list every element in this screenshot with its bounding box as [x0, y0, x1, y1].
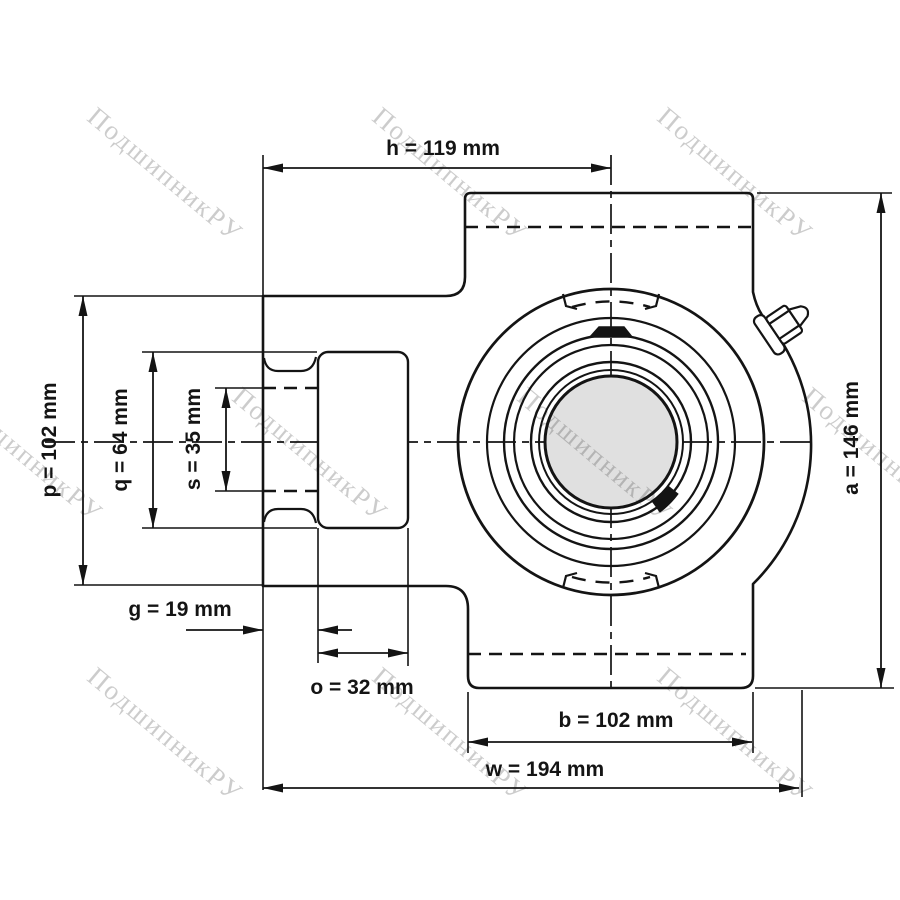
dimension-h: h = 119 mm [263, 137, 611, 168]
dimension-o-label: o = 32 mm [310, 676, 413, 699]
dimension-a-label: a = 146 mm [840, 381, 863, 495]
dimension-a: a = 146 mm [840, 193, 881, 688]
grease-hole-marker [590, 327, 632, 337]
shaft-bore [545, 376, 677, 508]
dimension-q-label: q = 64 mm [109, 388, 132, 491]
arm-notches [264, 357, 316, 523]
slider-boss [318, 352, 408, 528]
dimension-q: q = 64 mm [109, 352, 153, 528]
dimension-w-label: w = 194 mm [485, 758, 604, 781]
drawing-canvas: h = 119 mm p = 102 mm q = 64 mm s = 35 m… [0, 0, 900, 900]
dimension-b: b = 102 mm [468, 709, 752, 742]
dimension-h-label: h = 119 mm [386, 137, 500, 160]
dimension-s: s = 35 mm [182, 388, 226, 491]
dimension-o: o = 32 mm [310, 653, 413, 699]
dimension-p: p = 102 mm [38, 296, 83, 585]
dimension-s-label: s = 35 mm [182, 388, 205, 490]
dimension-b-label: b = 102 mm [559, 709, 674, 732]
technical-drawing: h = 119 mm p = 102 mm q = 64 mm s = 35 m… [0, 0, 900, 900]
dimension-g-label: g = 19 mm [128, 598, 231, 621]
dimension-w: w = 194 mm [263, 758, 799, 788]
dimension-p-label: p = 102 mm [38, 383, 61, 498]
